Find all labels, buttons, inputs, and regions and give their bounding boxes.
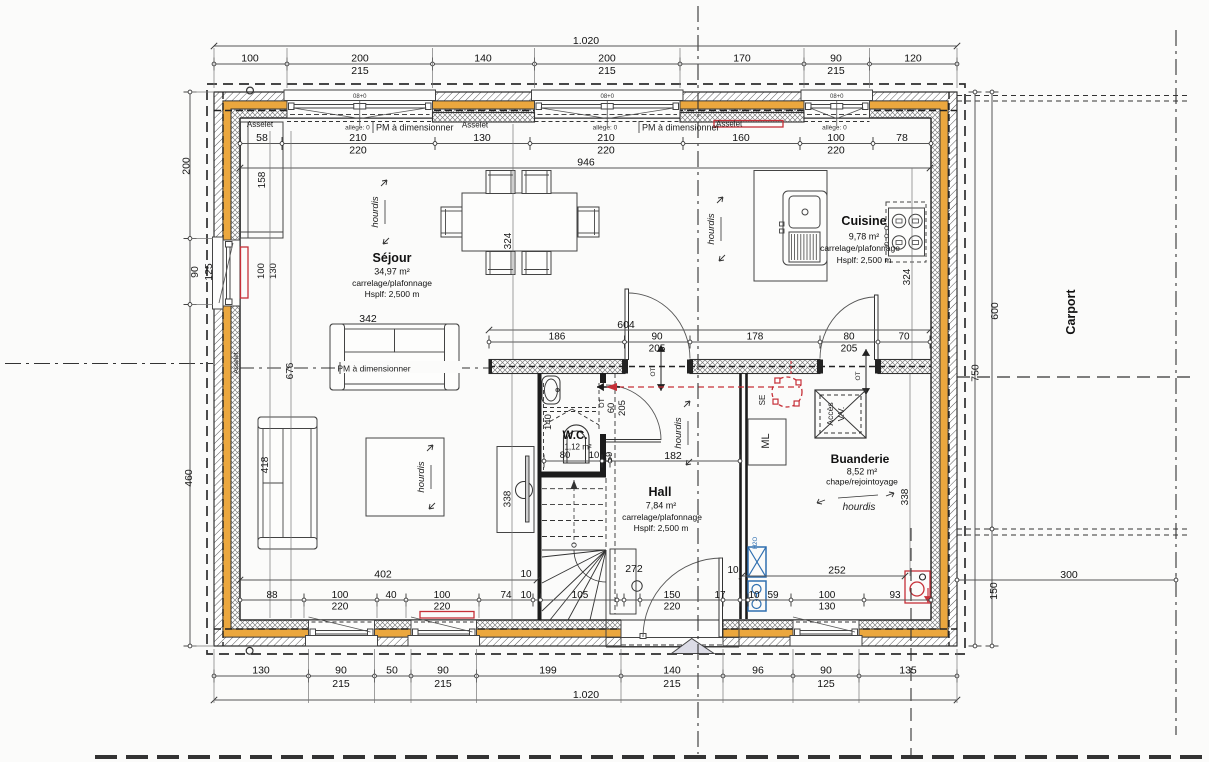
svg-text:402: 402 bbox=[374, 569, 392, 581]
svg-text:90: 90 bbox=[437, 665, 449, 677]
svg-text:215: 215 bbox=[434, 678, 452, 690]
svg-text:Asselet: Asselet bbox=[462, 121, 489, 130]
svg-text:205: 205 bbox=[841, 344, 858, 355]
svg-text:200: 200 bbox=[181, 157, 193, 175]
svg-text:ML: ML bbox=[760, 433, 772, 448]
svg-text:carrelage/plafonnage: carrelage/plafonnage bbox=[352, 278, 432, 288]
svg-text:90: 90 bbox=[189, 266, 201, 278]
svg-text:105: 105 bbox=[572, 590, 589, 601]
svg-text:10: 10 bbox=[727, 565, 739, 576]
svg-text:PM à dimensionner: PM à dimensionner bbox=[642, 123, 720, 133]
svg-text:Cuisine: Cuisine bbox=[841, 214, 886, 228]
svg-text:08+0: 08+0 bbox=[353, 94, 367, 100]
svg-text:125: 125 bbox=[817, 678, 835, 690]
svg-text:50: 50 bbox=[386, 665, 398, 677]
svg-text:140: 140 bbox=[543, 414, 554, 430]
svg-text:205: 205 bbox=[649, 344, 666, 355]
svg-text:Hsplf: 2,500 m: Hsplf: 2,500 m bbox=[365, 289, 420, 299]
svg-text:220: 220 bbox=[597, 145, 615, 157]
svg-text:Accès: Accès bbox=[825, 402, 835, 425]
svg-text:90: 90 bbox=[830, 53, 842, 65]
svg-text:100: 100 bbox=[332, 590, 349, 601]
svg-text:1.020: 1.020 bbox=[573, 35, 599, 47]
svg-text:125: 125 bbox=[203, 263, 215, 281]
svg-text:130: 130 bbox=[473, 132, 491, 144]
svg-text:220: 220 bbox=[664, 602, 681, 613]
svg-text:210: 210 bbox=[597, 132, 615, 144]
svg-text:Hsplf: 2,500 m: Hsplf: 2,500 m bbox=[634, 523, 689, 533]
svg-text:OT: OT bbox=[650, 367, 657, 376]
svg-text:OT: OT bbox=[599, 397, 606, 407]
svg-text:130: 130 bbox=[252, 665, 270, 677]
svg-text:100: 100 bbox=[434, 590, 451, 601]
svg-text:215: 215 bbox=[663, 678, 681, 690]
svg-text:70: 70 bbox=[898, 332, 910, 343]
svg-text:200: 200 bbox=[598, 53, 616, 65]
svg-text:10: 10 bbox=[520, 590, 532, 601]
svg-text:78: 78 bbox=[896, 132, 908, 144]
svg-text:59: 59 bbox=[767, 590, 779, 601]
svg-text:220: 220 bbox=[434, 602, 451, 613]
svg-text:chape/rejointoyage: chape/rejointoyage bbox=[826, 477, 898, 487]
svg-text:allège: 0: allège: 0 bbox=[345, 125, 370, 132]
svg-text:OT: OT bbox=[855, 371, 862, 380]
svg-text:418: 418 bbox=[260, 456, 271, 473]
svg-text:60: 60 bbox=[606, 403, 617, 414]
svg-text:100: 100 bbox=[241, 53, 259, 65]
svg-text:135: 135 bbox=[899, 665, 917, 677]
svg-text:220: 220 bbox=[332, 602, 349, 613]
svg-text:Hsplf: 2,500 m: Hsplf: 2,500 m bbox=[837, 255, 892, 265]
svg-text:Séjour: Séjour bbox=[373, 251, 412, 265]
svg-text:324: 324 bbox=[503, 232, 514, 249]
svg-text:140: 140 bbox=[663, 665, 681, 677]
svg-text:170: 170 bbox=[733, 53, 751, 65]
svg-text:300: 300 bbox=[1060, 569, 1078, 581]
svg-text:H2O: H2O bbox=[753, 537, 759, 550]
svg-text:220: 220 bbox=[349, 145, 367, 157]
svg-text:1,12 m²: 1,12 m² bbox=[564, 443, 591, 452]
svg-text:96: 96 bbox=[752, 665, 764, 677]
svg-text:342: 342 bbox=[359, 313, 377, 325]
svg-text:80: 80 bbox=[843, 332, 855, 343]
svg-text:08+0: 08+0 bbox=[830, 94, 844, 100]
svg-text:460: 460 bbox=[183, 469, 195, 487]
svg-text:160: 160 bbox=[732, 132, 750, 144]
svg-text:hourdis: hourdis bbox=[673, 417, 684, 448]
svg-text:90: 90 bbox=[651, 332, 663, 343]
svg-text:Asselet: Asselet bbox=[233, 352, 240, 374]
svg-text:338: 338 bbox=[900, 488, 911, 505]
svg-text:210: 210 bbox=[349, 132, 367, 144]
svg-text:58: 58 bbox=[256, 132, 268, 144]
svg-text:186: 186 bbox=[549, 332, 566, 343]
svg-text:150: 150 bbox=[988, 582, 1000, 600]
svg-text:74: 74 bbox=[500, 590, 512, 601]
svg-text:10: 10 bbox=[520, 569, 532, 580]
svg-text:199: 199 bbox=[539, 665, 557, 677]
svg-text:1.020: 1.020 bbox=[573, 689, 599, 701]
svg-text:150: 150 bbox=[664, 590, 681, 601]
svg-text:324: 324 bbox=[902, 268, 913, 285]
svg-text:Carport: Carport bbox=[1064, 289, 1078, 335]
svg-text:215: 215 bbox=[827, 65, 845, 77]
svg-text:205: 205 bbox=[617, 400, 628, 416]
svg-text:Asselet: Asselet bbox=[716, 120, 743, 129]
svg-text:140: 140 bbox=[474, 53, 492, 65]
svg-text:604: 604 bbox=[617, 319, 635, 331]
svg-text:215: 215 bbox=[351, 65, 369, 77]
svg-text:10: 10 bbox=[748, 590, 760, 601]
svg-text:80: 80 bbox=[560, 450, 571, 461]
svg-text:Hall: Hall bbox=[649, 485, 672, 499]
svg-text:200: 200 bbox=[351, 53, 369, 65]
svg-text:750: 750 bbox=[970, 364, 982, 382]
svg-text:178: 178 bbox=[747, 332, 764, 343]
svg-text:600: 600 bbox=[989, 302, 1001, 320]
svg-text:W.C.: W.C. bbox=[563, 430, 588, 442]
svg-text:7,84 m²: 7,84 m² bbox=[646, 501, 677, 511]
svg-text:252: 252 bbox=[828, 565, 846, 577]
svg-text:hourdis: hourdis bbox=[416, 461, 427, 492]
svg-text:carrelage/plafonnage: carrelage/plafonnage bbox=[820, 243, 900, 253]
svg-text:PM à dimensionner: PM à dimensionner bbox=[376, 123, 454, 133]
svg-text:PM à dimensionner: PM à dimensionner bbox=[337, 364, 410, 374]
svg-text:40: 40 bbox=[385, 590, 397, 601]
svg-text:8,52 m²: 8,52 m² bbox=[847, 467, 878, 477]
svg-text:338: 338 bbox=[503, 490, 514, 507]
svg-text:10: 10 bbox=[589, 450, 600, 461]
svg-text:hourdis: hourdis bbox=[370, 196, 381, 227]
svg-text:220: 220 bbox=[827, 145, 845, 157]
svg-text:hourdis: hourdis bbox=[843, 502, 876, 513]
svg-text:130: 130 bbox=[819, 602, 836, 613]
svg-text:9,78 m²: 9,78 m² bbox=[849, 232, 880, 242]
svg-text:100: 100 bbox=[256, 263, 267, 279]
svg-text:Asselet: Asselet bbox=[247, 120, 274, 129]
svg-text:272: 272 bbox=[625, 563, 643, 575]
svg-text:V.V.: V.V. bbox=[836, 407, 846, 422]
svg-text:08+0: 08+0 bbox=[600, 94, 614, 100]
svg-text:88: 88 bbox=[266, 590, 278, 601]
svg-text:carrelage/plafonnage: carrelage/plafonnage bbox=[622, 512, 702, 522]
svg-text:90: 90 bbox=[335, 665, 347, 677]
svg-text:59: 59 bbox=[604, 452, 615, 463]
svg-text:676: 676 bbox=[285, 362, 296, 379]
svg-text:SE: SE bbox=[758, 395, 767, 406]
svg-text:17: 17 bbox=[714, 590, 726, 601]
svg-text:100: 100 bbox=[819, 590, 836, 601]
svg-text:hourdis: hourdis bbox=[706, 213, 717, 244]
svg-text:allège: 0: allège: 0 bbox=[822, 125, 847, 132]
svg-text:215: 215 bbox=[332, 678, 350, 690]
svg-text:182: 182 bbox=[664, 450, 682, 462]
svg-text:158: 158 bbox=[257, 171, 268, 188]
svg-text:90: 90 bbox=[820, 665, 832, 677]
svg-text:215: 215 bbox=[598, 65, 616, 77]
svg-text:120: 120 bbox=[904, 53, 922, 65]
svg-text:946: 946 bbox=[577, 157, 595, 169]
svg-text:34,97 m²: 34,97 m² bbox=[374, 267, 410, 277]
svg-text:allège: 0: allège: 0 bbox=[593, 125, 618, 132]
svg-text:Buanderie: Buanderie bbox=[831, 452, 890, 466]
svg-text:93: 93 bbox=[889, 590, 901, 601]
svg-text:100: 100 bbox=[827, 132, 845, 144]
